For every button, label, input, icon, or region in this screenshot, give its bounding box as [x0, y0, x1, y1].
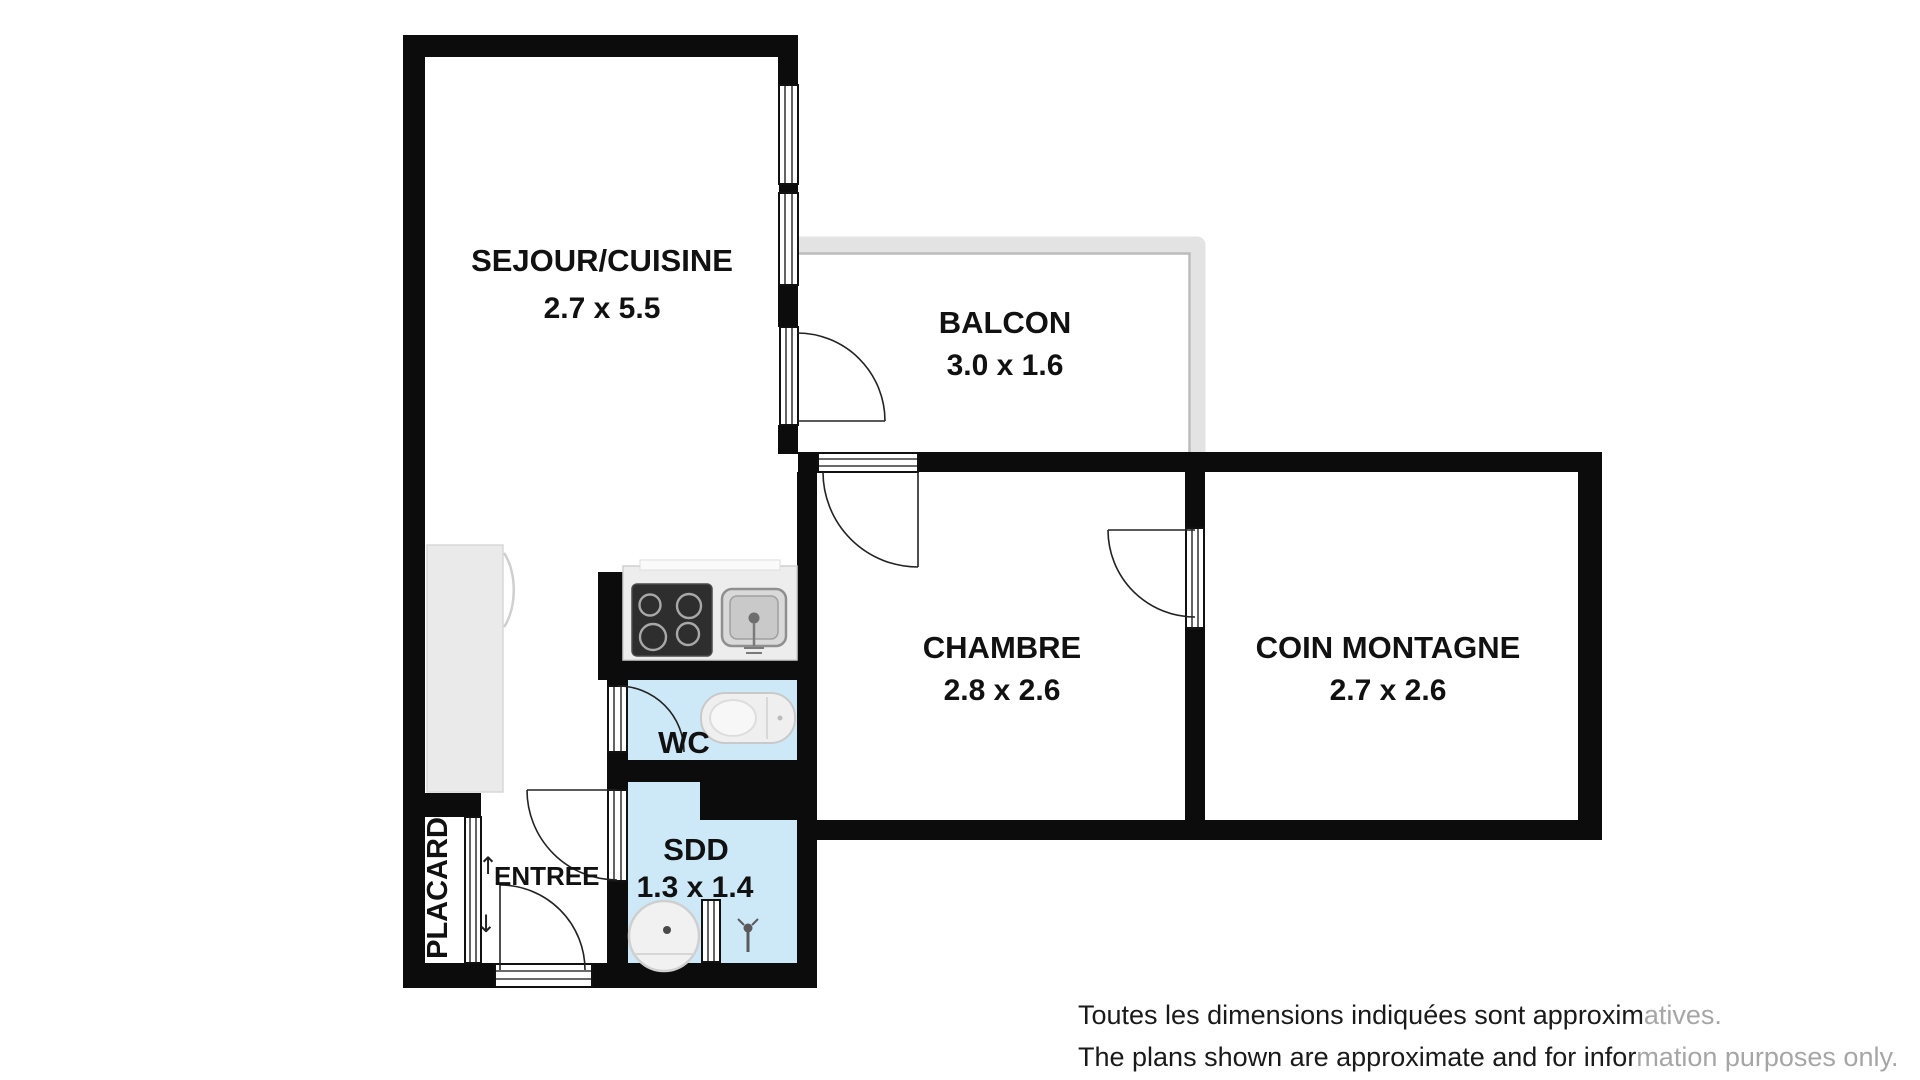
room-dims-chambre: 2.8 x 2.6 — [944, 674, 1061, 707]
doorframe-sejour-balcony — [780, 327, 798, 425]
room-labels: SEJOUR/CUISINE 2.7 x 5.5 BALCON 3.0 x 1.… — [422, 243, 1520, 959]
wall-bottom-left-b — [592, 963, 817, 988]
window-sejour-lower — [779, 193, 798, 285]
room-label-sejour: SEJOUR/CUISINE — [471, 243, 733, 278]
tall-cabinet-icon — [427, 545, 514, 792]
door-chambre-balcony — [823, 472, 918, 567]
room-dims-coin-montagne: 2.7 x 2.6 — [1330, 674, 1447, 707]
wall-divider-bottom — [1185, 628, 1205, 820]
stove-cooktop-icon — [632, 584, 712, 656]
door-entree — [500, 885, 585, 970]
room-label-entree: ENTREE — [494, 861, 599, 891]
room-label-sdd: SDD — [663, 832, 728, 867]
doorframe-sdd — [608, 790, 627, 881]
wall-chambre-bottom — [797, 820, 1602, 840]
doorframe-wc — [608, 686, 627, 752]
room-label-placard: PLACARD — [422, 817, 454, 959]
room-label-coin-montagne: COIN MONTAGNE — [1256, 630, 1521, 665]
wall-wc-sdd-divider — [607, 760, 817, 782]
door-sejour-balcony — [797, 333, 885, 421]
wall-kitchen-bottom — [598, 660, 817, 680]
washbasin-icon — [629, 901, 699, 971]
disclaimer-line2-gray: mation purposes only. — [1636, 1042, 1898, 1072]
disclaimer-line2-dark: The plans shown are approximate and for … — [1078, 1042, 1636, 1072]
windows-and-frames — [465, 85, 1204, 987]
wall-sejour-right-low — [778, 425, 798, 454]
kitchen-sink-icon — [722, 589, 786, 653]
wall-divider-top — [1185, 472, 1205, 528]
towel-radiator-icon — [702, 900, 720, 962]
wall-kitchen-left-stub — [598, 572, 623, 660]
wall-balcony-bottom-a — [798, 452, 818, 472]
wall-bottom-left-a — [403, 963, 495, 988]
entree-arrow-up-icon: ↑ — [478, 852, 498, 880]
disclaimer-line-1: Toutes les dimensions indiquées sont app… — [1078, 1000, 1722, 1030]
wall-chambre-left — [797, 472, 817, 988]
doorframe-entree — [495, 964, 592, 987]
wall-placard-stub — [403, 793, 481, 817]
door-coin-montagne — [1108, 530, 1195, 617]
room-label-wc: WC — [658, 725, 710, 760]
toilet-icon — [701, 693, 795, 743]
wall-balcony-bottom-b — [918, 452, 1602, 472]
disclaimer-line1-gray: atives. — [1644, 1000, 1722, 1030]
wall-right — [1578, 452, 1602, 840]
placard-sliding-door — [465, 817, 481, 963]
disclaimer: Toutes les dimensions indiquées sont app… — [1078, 1000, 1898, 1072]
window-sejour-upper — [779, 85, 798, 184]
doorframe-coin-montagne — [1186, 528, 1204, 628]
wall-sdd-left-bottom — [607, 879, 628, 963]
wall-top — [403, 35, 798, 57]
doorframe-chambre-balcony — [818, 453, 918, 472]
wall-sejour-right-mid — [778, 285, 798, 327]
room-label-chambre: CHAMBRE — [923, 630, 1081, 665]
disclaimer-line-2: The plans shown are approximate and for … — [1078, 1042, 1898, 1072]
wall-sdd-notch — [700, 782, 817, 820]
disclaimer-line1-dark: Toutes les dimensions indiquées sont app… — [1078, 1000, 1644, 1030]
room-label-balcon: BALCON — [939, 305, 1072, 340]
wall-window-sill — [779, 184, 798, 193]
wall-sejour-right-corner — [778, 35, 798, 85]
room-dims-sejour: 2.7 x 5.5 — [544, 292, 661, 325]
room-dims-sdd: 1.3 x 1.4 — [637, 871, 754, 904]
entree-arrow-down-icon: ↓ — [476, 910, 496, 938]
floor-plan-canvas: SEJOUR/CUISINE 2.7 x 5.5 BALCON 3.0 x 1.… — [0, 0, 1920, 1080]
walls — [403, 35, 1602, 988]
room-dims-balcon: 3.0 x 1.6 — [947, 349, 1064, 382]
